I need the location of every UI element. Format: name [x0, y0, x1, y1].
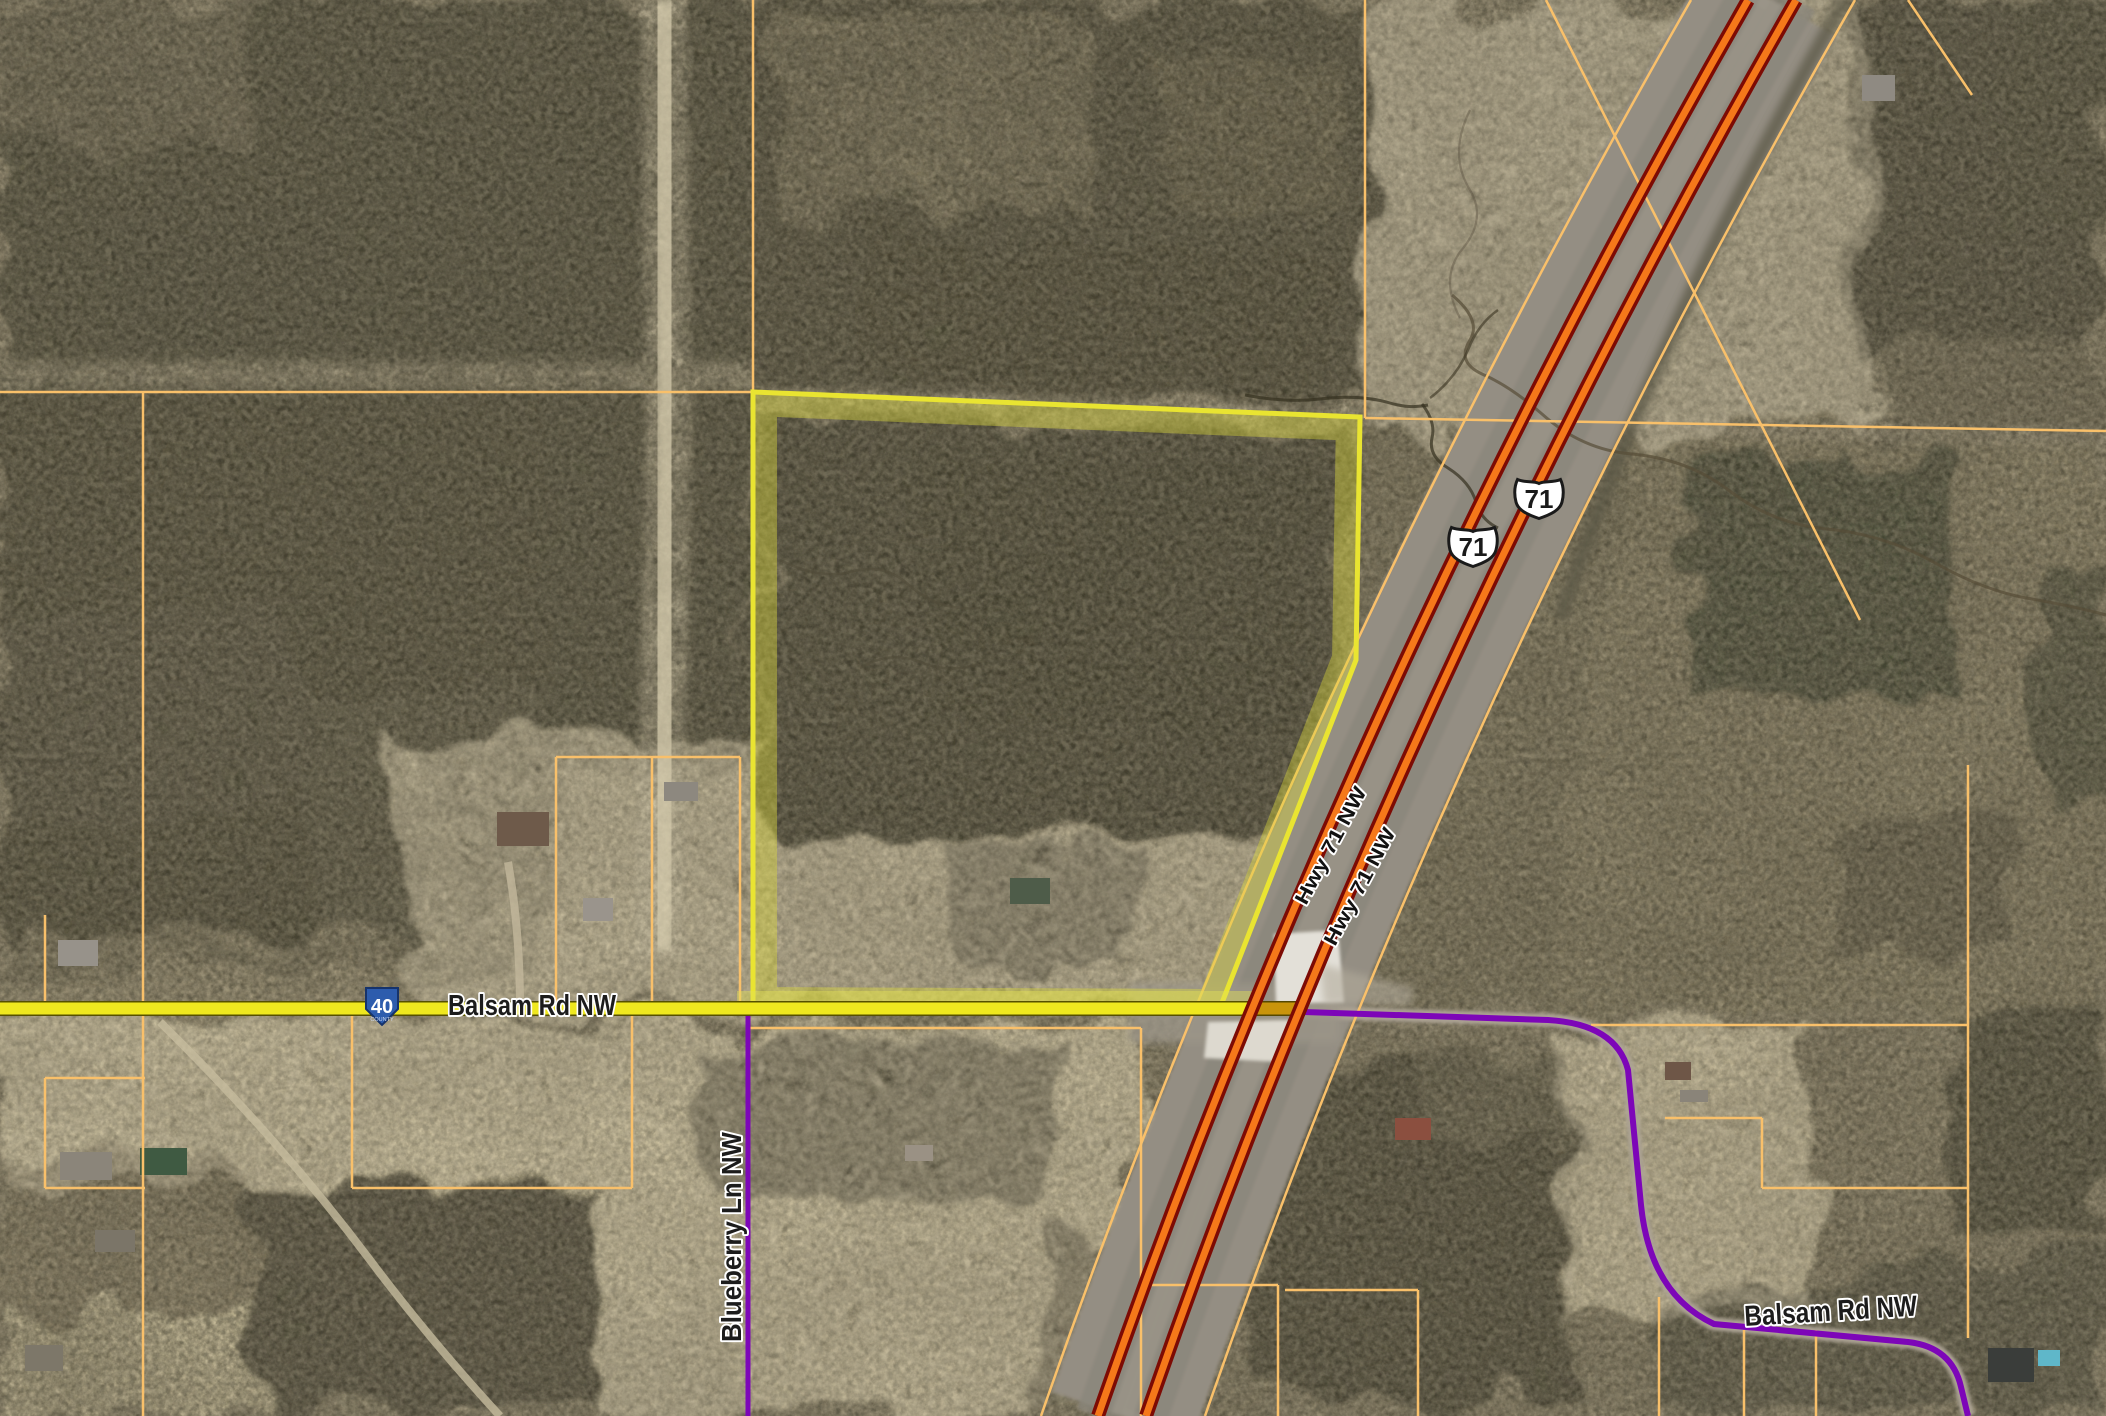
svg-text:Blueberry Ln NW: Blueberry Ln NW: [716, 1131, 747, 1342]
svg-text:71: 71: [1525, 484, 1554, 514]
svg-text:COUNTY: COUNTY: [370, 1017, 394, 1023]
svg-text:40: 40: [371, 996, 393, 1018]
svg-text:Balsam Rd NW: Balsam Rd NW: [448, 990, 617, 1022]
svg-text:71: 71: [1459, 532, 1488, 562]
